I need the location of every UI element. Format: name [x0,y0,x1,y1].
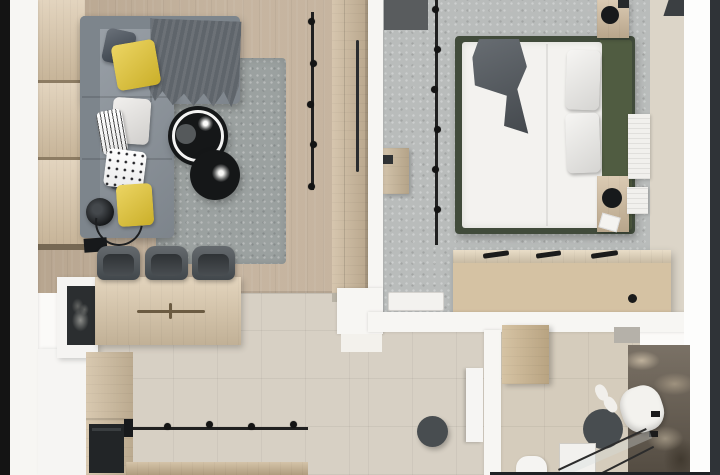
apartment-render [0,0,720,475]
table-decor-bowl [176,124,196,144]
track-spotlight [308,183,315,190]
radiator-panel [628,114,650,179]
slat-panel [35,0,85,80]
radiator-panel-small [627,187,648,214]
wall-living-bedroom [368,0,383,334]
track-spotlight [290,421,297,428]
track-spotlight [431,86,438,93]
track-spotlight [164,423,171,430]
wood-slat-wall [35,0,85,250]
wardrobe-handle [356,40,359,172]
chair-seat [151,254,182,276]
table-decor-flowers [212,164,230,182]
office-chair [192,246,235,280]
bathroom-gray-mat [614,327,640,343]
oven [89,424,124,473]
table-decor-plant [198,116,213,131]
track-spotlight [432,166,439,173]
left-outer-wall [10,0,38,475]
bed-pillow [565,112,601,173]
table-lamp-top [601,6,619,24]
kitchen-wall-column [38,349,88,475]
office-chair [145,246,188,280]
bed-pillow [565,49,601,110]
track-spotlight [310,141,317,148]
track-spotlight [432,6,439,13]
floor-tray [388,292,444,311]
slat-wall-shadow [35,244,85,250]
nightstand-accessory [618,0,629,8]
pillow-yellow [110,39,161,92]
track-spotlight [434,206,441,213]
desk-groove-cross [169,303,172,319]
slat-panel [35,160,85,244]
towel-hook [651,411,660,417]
wall-hall-bathroom [484,330,501,475]
mattress-crease [546,44,548,226]
table-lamp-bottom [602,188,622,208]
track-spotlight [434,46,441,53]
bedroom-dark-mat [384,0,428,30]
office-chair [97,246,140,280]
track-mount [124,419,133,437]
track-spotlight [307,101,314,108]
track-spotlight [310,60,317,67]
chair-seat [103,254,134,276]
sideboard-art-inset [67,286,95,345]
slat-panel [35,83,85,157]
track-spotlight [434,126,441,133]
frame-band-right [710,0,720,475]
hall-doorway-threshold [341,334,382,352]
dresser-knob [628,294,637,303]
hall-wall-shelf [466,368,483,442]
bathroom-open-door [502,325,549,384]
chair-seat [198,254,229,276]
kitchen-counter [126,462,308,475]
coffee-table-small [190,150,240,200]
dresser [453,250,671,312]
track-spotlight [248,423,255,430]
hall-pouf [417,416,448,447]
track-light-kitchen [126,427,308,430]
oven-handle [92,428,121,431]
wardrobe-seam [344,0,345,293]
track-spotlight [308,18,315,25]
wardrobe [332,0,368,293]
bench-dark-object [383,155,393,164]
track-spotlight [206,421,213,428]
frame-band-left [0,0,10,475]
